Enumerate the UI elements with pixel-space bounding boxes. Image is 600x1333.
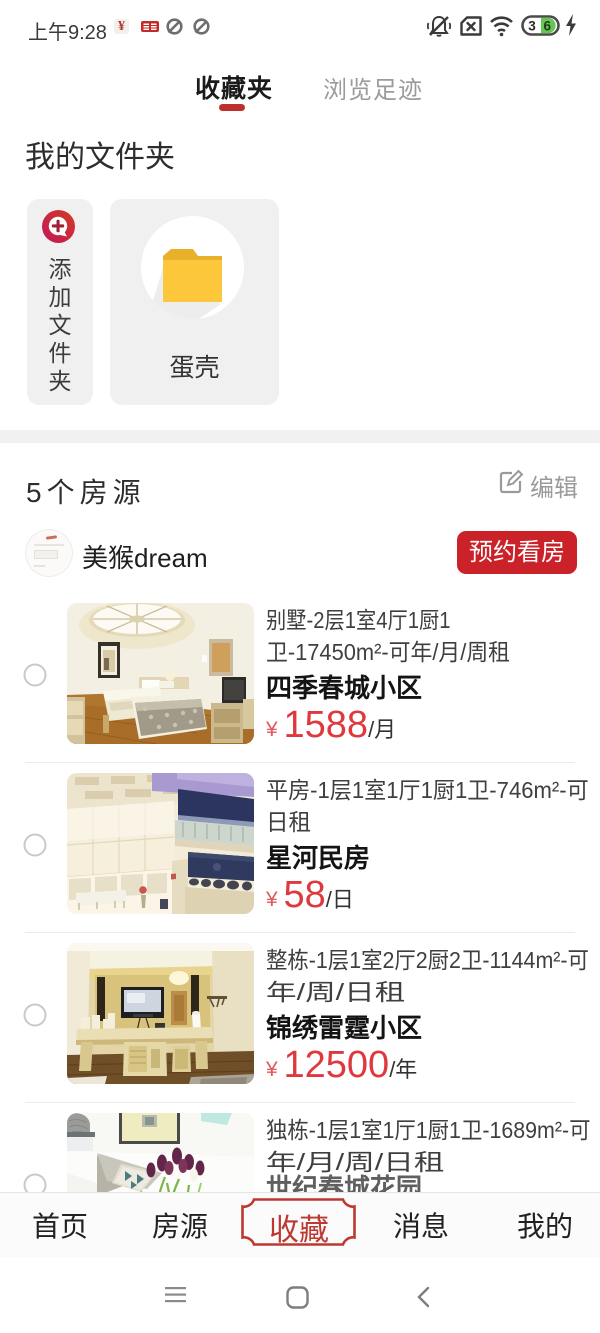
svg-text:3: 3	[528, 19, 536, 34]
svg-text:6: 6	[544, 19, 552, 34]
